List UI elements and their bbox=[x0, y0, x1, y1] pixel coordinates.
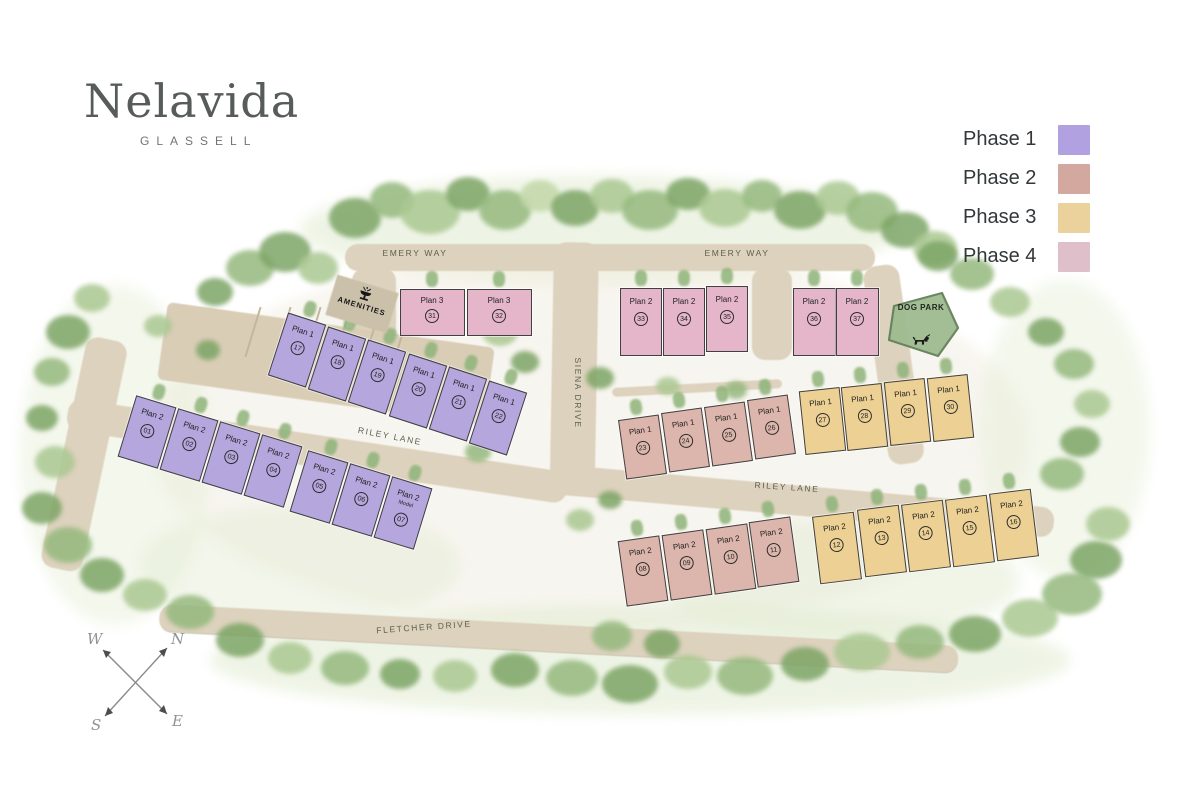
lot-plan-label: Plan 1 bbox=[671, 418, 695, 430]
lot-plan-label: Plan 1 bbox=[412, 365, 436, 381]
tree-blob bbox=[1054, 349, 1094, 379]
phase-legend: Phase 1Phase 2Phase 3Phase 4 bbox=[963, 120, 1090, 276]
tree-blob bbox=[268, 642, 312, 674]
legend-swatch-phase-4 bbox=[1058, 242, 1090, 272]
lot-plan-label: Plan 2 bbox=[759, 527, 783, 539]
lot-unit-number: 12 bbox=[829, 537, 845, 553]
lot-16[interactable]: Plan 216 bbox=[989, 489, 1039, 562]
dog-park-label: DOG PARK bbox=[896, 303, 946, 313]
community-logo: Nelavida GLASSELL bbox=[84, 78, 299, 148]
tree-blob bbox=[74, 284, 110, 312]
tree-blob bbox=[598, 491, 622, 509]
lot-unit-number: 02 bbox=[181, 435, 198, 452]
lot-29[interactable]: Plan 129 bbox=[883, 378, 930, 446]
shrub bbox=[811, 371, 825, 388]
lot-unit-number: 25 bbox=[720, 427, 736, 443]
lot-plan-label: Plan 1 bbox=[331, 338, 355, 354]
legend-swatch-phase-3 bbox=[1058, 203, 1090, 233]
lot-13[interactable]: Plan 213 bbox=[857, 505, 907, 578]
shrub bbox=[678, 270, 690, 286]
path-emery-south-b bbox=[752, 268, 792, 360]
lot-unit-number: 14 bbox=[918, 525, 934, 541]
compass-s: S bbox=[91, 716, 101, 734]
tree-blob bbox=[1040, 458, 1084, 490]
lot-33[interactable]: Plan 233 bbox=[620, 288, 662, 356]
tree-blob bbox=[166, 595, 214, 629]
lot-unit-number: 33 bbox=[634, 312, 648, 326]
lot-unit-number: 22 bbox=[490, 407, 508, 425]
lot-unit-number: 05 bbox=[311, 477, 328, 494]
lot-unit-number: 37 bbox=[850, 312, 864, 326]
lot-plan-label: Plan 1 bbox=[492, 392, 516, 408]
tree-blob bbox=[566, 509, 594, 531]
compass-rose: N E S W bbox=[75, 626, 197, 734]
lot-unit-number: 09 bbox=[679, 555, 695, 571]
lot-plan-label: Plan 3 bbox=[421, 296, 444, 305]
lot-plan-label: Plan 2 bbox=[672, 540, 696, 552]
tree-blob bbox=[34, 358, 70, 386]
legend-swatch-phase-1 bbox=[1058, 125, 1090, 155]
legend-label: Phase 2 bbox=[963, 167, 1058, 190]
tree-blob bbox=[1086, 507, 1130, 541]
lot-unit-number: 01 bbox=[139, 422, 156, 439]
lot-14[interactable]: Plan 214 bbox=[901, 500, 951, 573]
tree-blob bbox=[144, 315, 172, 337]
lot-unit-number: 35 bbox=[720, 310, 734, 324]
lot-plan-label: Plan 2 bbox=[868, 515, 892, 527]
lot-plan-label: Plan 1 bbox=[628, 425, 652, 437]
lot-unit-number: 03 bbox=[223, 448, 240, 465]
lot-plan-label: Plan 2 bbox=[956, 505, 980, 517]
lot-plan-label: Plan 1 bbox=[714, 412, 738, 424]
logo-subtitle: GLASSELL bbox=[140, 134, 299, 148]
tree-blob bbox=[380, 659, 420, 689]
lot-unit-number: 30 bbox=[942, 399, 957, 414]
shrub bbox=[851, 270, 863, 286]
lot-plan-label: Plan 2 bbox=[823, 522, 847, 534]
tree-blob bbox=[433, 660, 477, 692]
tree-blob bbox=[321, 651, 369, 685]
lot-plan-label: Plan 2 bbox=[354, 475, 378, 490]
lot-plan-label: Plan 2 bbox=[716, 295, 739, 304]
lot-36[interactable]: Plan 236 bbox=[793, 288, 836, 356]
legend-row-phase-2: Phase 2 bbox=[963, 159, 1090, 198]
lot-unit-number: 20 bbox=[410, 380, 428, 398]
legend-label: Phase 1 bbox=[963, 128, 1058, 151]
tree-blob bbox=[664, 655, 712, 689]
lot-unit-number: 06 bbox=[353, 490, 370, 507]
lot-plan-label: Plan 2 bbox=[628, 546, 652, 558]
tree-blob bbox=[1028, 318, 1064, 346]
tree-blob bbox=[80, 558, 124, 592]
tree-blob bbox=[1070, 541, 1122, 579]
lot-unit-number: 07 bbox=[392, 511, 409, 528]
tree-blob bbox=[546, 660, 598, 696]
tree-blob bbox=[834, 633, 890, 671]
shrub bbox=[426, 271, 438, 287]
tree-blob bbox=[22, 492, 62, 524]
shrub bbox=[635, 270, 647, 286]
lot-unit-number: 24 bbox=[677, 433, 693, 449]
street-label-siena-drive: SIENA DRIVE bbox=[573, 358, 583, 429]
street-label-emery-way-right: EMERY WAY bbox=[704, 248, 769, 258]
lot-34[interactable]: Plan 234 bbox=[663, 288, 705, 356]
shrub bbox=[853, 367, 867, 384]
lot-plan-label: Plan 1 bbox=[936, 384, 960, 395]
lot-unit-number: 11 bbox=[766, 542, 782, 558]
legend-row-phase-3: Phase 3 bbox=[963, 198, 1090, 237]
shrub bbox=[721, 268, 733, 284]
lot-plan-label: Plan 1 bbox=[452, 378, 476, 394]
lot-26[interactable]: Plan 126 bbox=[747, 394, 796, 459]
lot-12[interactable]: Plan 212 bbox=[812, 512, 862, 585]
lot-31[interactable]: Plan 331 bbox=[400, 289, 465, 336]
tree-blob bbox=[196, 340, 220, 360]
legend-row-phase-4: Phase 4 bbox=[963, 237, 1090, 276]
dog-park-area bbox=[878, 286, 968, 370]
lot-15[interactable]: Plan 215 bbox=[945, 495, 995, 568]
lot-unit-number: 13 bbox=[874, 530, 890, 546]
tree-blob bbox=[491, 653, 539, 687]
tree-blob bbox=[717, 657, 773, 695]
lot-28[interactable]: Plan 128 bbox=[840, 383, 887, 451]
lot-37[interactable]: Plan 237 bbox=[836, 288, 879, 356]
lot-unit-number: 08 bbox=[635, 561, 651, 577]
tree-blob bbox=[644, 630, 680, 658]
lot-plan-label: Plan 1 bbox=[371, 351, 395, 367]
tree-blob bbox=[1042, 573, 1102, 615]
lot-plan-label: Plan 2 bbox=[912, 510, 936, 522]
tree-blob bbox=[586, 367, 614, 389]
lot-unit-number: 32 bbox=[492, 309, 506, 323]
lot-32[interactable]: Plan 332 bbox=[467, 289, 532, 336]
lot-unit-number: 10 bbox=[723, 549, 739, 565]
lot-unit-number: 19 bbox=[369, 366, 387, 384]
lot-unit-number: 27 bbox=[814, 412, 829, 427]
lot-23[interactable]: Plan 123 bbox=[618, 414, 667, 479]
tree-blob bbox=[298, 252, 338, 284]
lot-unit-number: 26 bbox=[763, 420, 779, 436]
lot-plan-label: Plan 3 bbox=[488, 296, 511, 305]
lot-plan-label: Plan 1 bbox=[757, 405, 781, 417]
site-map-page: EMERY WAYEMERY WAYSIENA DRIVERILEY LANER… bbox=[0, 0, 1200, 792]
lot-plan-label: Plan 2 bbox=[716, 534, 740, 546]
lot-plan-label: Plan 1 bbox=[808, 397, 832, 408]
lot-plan-label: Plan 2 bbox=[312, 462, 336, 477]
tree-blob bbox=[592, 621, 632, 651]
lot-unit-number: 31 bbox=[425, 309, 439, 323]
lot-unit-number: 29 bbox=[899, 403, 914, 418]
tree-blob bbox=[216, 623, 264, 657]
street-label-emery-way-left: EMERY WAY bbox=[382, 248, 447, 258]
lot-unit-number: 28 bbox=[856, 408, 871, 423]
logo-name: Nelavida bbox=[84, 78, 299, 124]
lot-plan-label: Plan 2 bbox=[1000, 499, 1024, 511]
lot-unit-number: 15 bbox=[962, 520, 978, 536]
tree-blob bbox=[123, 579, 167, 611]
lot-unit-number: 18 bbox=[329, 353, 347, 371]
legend-label: Phase 3 bbox=[963, 206, 1058, 229]
legend-label: Phase 4 bbox=[963, 245, 1058, 268]
lot-unit-number: 04 bbox=[265, 461, 282, 478]
lot-plan-label: Plan 2 bbox=[140, 407, 164, 422]
compass-e: E bbox=[171, 712, 183, 730]
lot-30[interactable]: Plan 130 bbox=[926, 374, 973, 442]
lot-plan-label: Plan 2 bbox=[182, 420, 206, 435]
lot-plan-label: Plan 2 bbox=[846, 297, 869, 306]
dog-icon bbox=[910, 334, 932, 350]
lot-27[interactable]: Plan 127 bbox=[798, 387, 845, 455]
lot-plan-label: Plan 2 bbox=[673, 297, 696, 306]
legend-row-phase-1: Phase 1 bbox=[963, 120, 1090, 159]
tree-blob bbox=[197, 278, 233, 306]
lot-unit-number: 21 bbox=[450, 393, 468, 411]
tree-blob bbox=[46, 315, 90, 349]
lot-plan-label: Plan 1 bbox=[850, 393, 874, 404]
lot-25[interactable]: Plan 125 bbox=[704, 401, 753, 466]
compass-w: W bbox=[87, 630, 104, 648]
tree-blob bbox=[990, 287, 1030, 317]
lot-plan-label: Plan 1 bbox=[893, 388, 917, 399]
lot-11[interactable]: Plan 211 bbox=[749, 516, 800, 587]
shrub bbox=[808, 270, 820, 286]
shrub bbox=[493, 271, 505, 287]
tree-blob bbox=[44, 527, 92, 563]
lot-plan-label: Plan 2 bbox=[803, 297, 826, 306]
tree-blob bbox=[35, 446, 75, 478]
lot-plan-label: Plan 2 bbox=[630, 297, 653, 306]
legend-swatch-phase-2 bbox=[1058, 164, 1090, 194]
lot-unit-number: 16 bbox=[1006, 514, 1022, 530]
tree-blob bbox=[896, 625, 944, 659]
lot-unit-number: 34 bbox=[677, 312, 691, 326]
tree-blob bbox=[1060, 427, 1100, 457]
lot-35[interactable]: Plan 235 bbox=[706, 286, 748, 352]
lot-plan-label: Plan 1 bbox=[291, 324, 315, 340]
lot-unit-number: 36 bbox=[807, 312, 821, 326]
tree-blob bbox=[1074, 390, 1110, 418]
lot-24[interactable]: Plan 124 bbox=[661, 407, 710, 472]
tree-blob bbox=[918, 241, 958, 271]
lot-unit-number: 17 bbox=[289, 339, 307, 357]
lot-08[interactable]: Plan 208 bbox=[618, 535, 669, 606]
lot-plan-label: Plan 2 bbox=[224, 433, 248, 448]
lot-09[interactable]: Plan 209 bbox=[662, 529, 713, 600]
tree-blob bbox=[26, 405, 58, 431]
lot-plan-label: Plan 2 bbox=[266, 446, 290, 461]
compass-n: N bbox=[170, 630, 185, 648]
tree-blob bbox=[781, 647, 829, 681]
tree-blob bbox=[602, 665, 658, 703]
tree-blob bbox=[949, 616, 1001, 652]
lot-unit-number: 23 bbox=[634, 440, 650, 456]
lot-10[interactable]: Plan 210 bbox=[706, 523, 757, 594]
